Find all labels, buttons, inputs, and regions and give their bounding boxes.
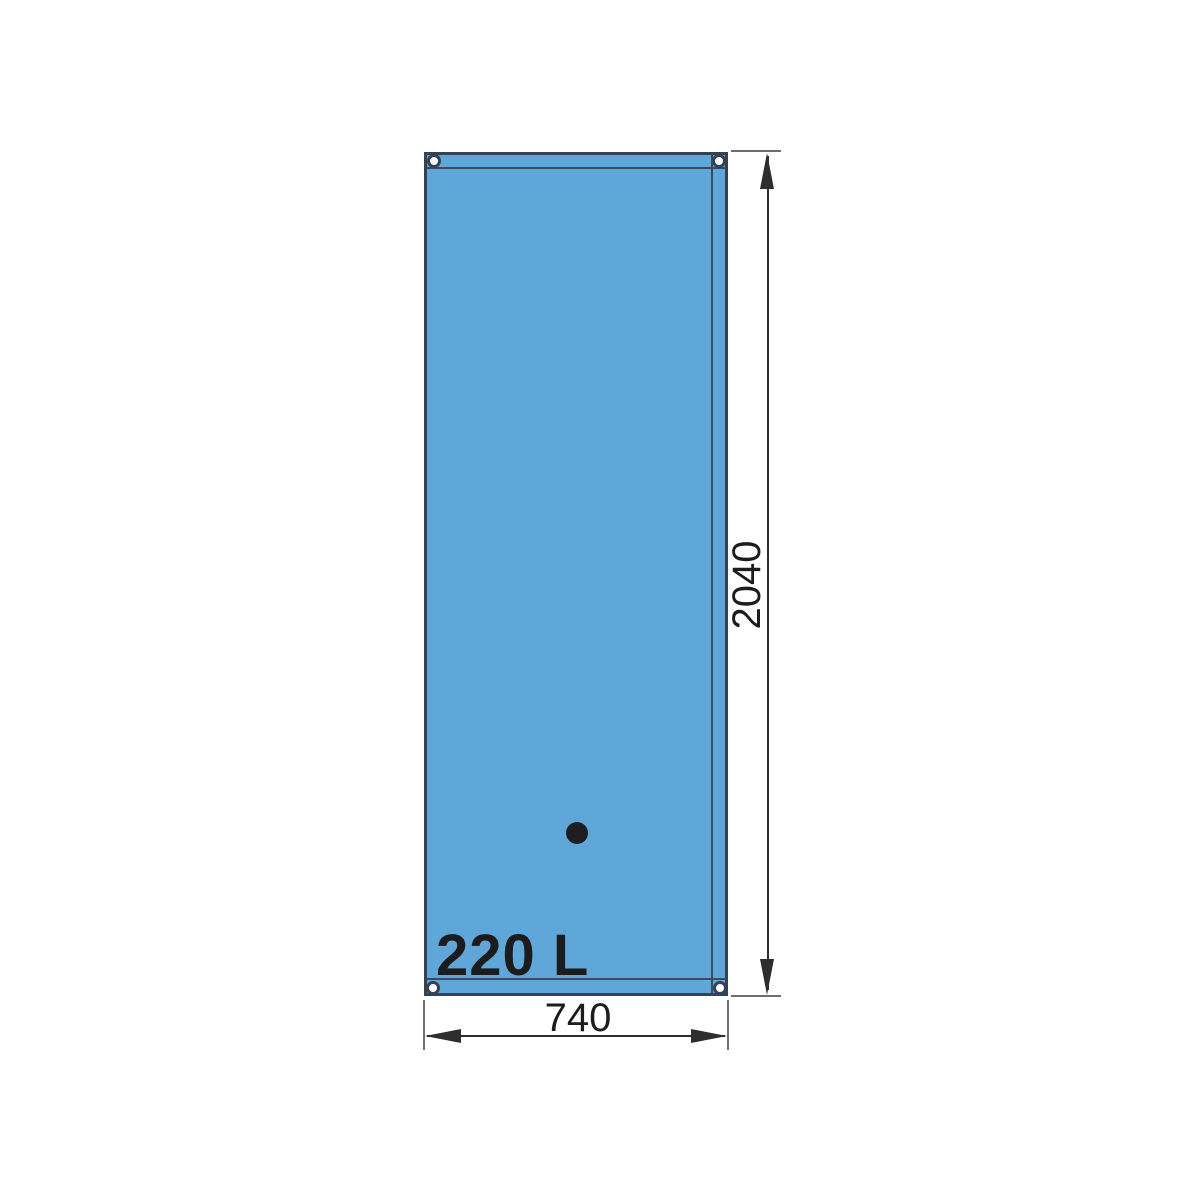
arrow-left-icon (425, 1029, 461, 1043)
grommet-top-right (712, 154, 726, 168)
height-extension-line-bottom (731, 995, 781, 997)
tank-body (424, 152, 728, 996)
height-dimension-label: 2040 (725, 520, 769, 650)
width-dimension-label: 740 (518, 998, 638, 1038)
arrow-down-icon (760, 959, 774, 995)
width-extension-line-right (727, 1000, 729, 1050)
grommet-top-left (427, 154, 441, 168)
capacity-label: 220 L (436, 927, 589, 985)
arrow-right-icon (691, 1029, 727, 1043)
height-extension-line-top (731, 150, 781, 152)
grommet-bottom-right (713, 981, 727, 995)
tank-drawing-canvas: 220 L 2040 740 (0, 0, 1200, 1200)
fill-port-dot (566, 822, 588, 844)
tank-top-seam (427, 167, 725, 169)
tank-right-seam (711, 155, 713, 993)
arrow-up-icon (760, 153, 774, 189)
